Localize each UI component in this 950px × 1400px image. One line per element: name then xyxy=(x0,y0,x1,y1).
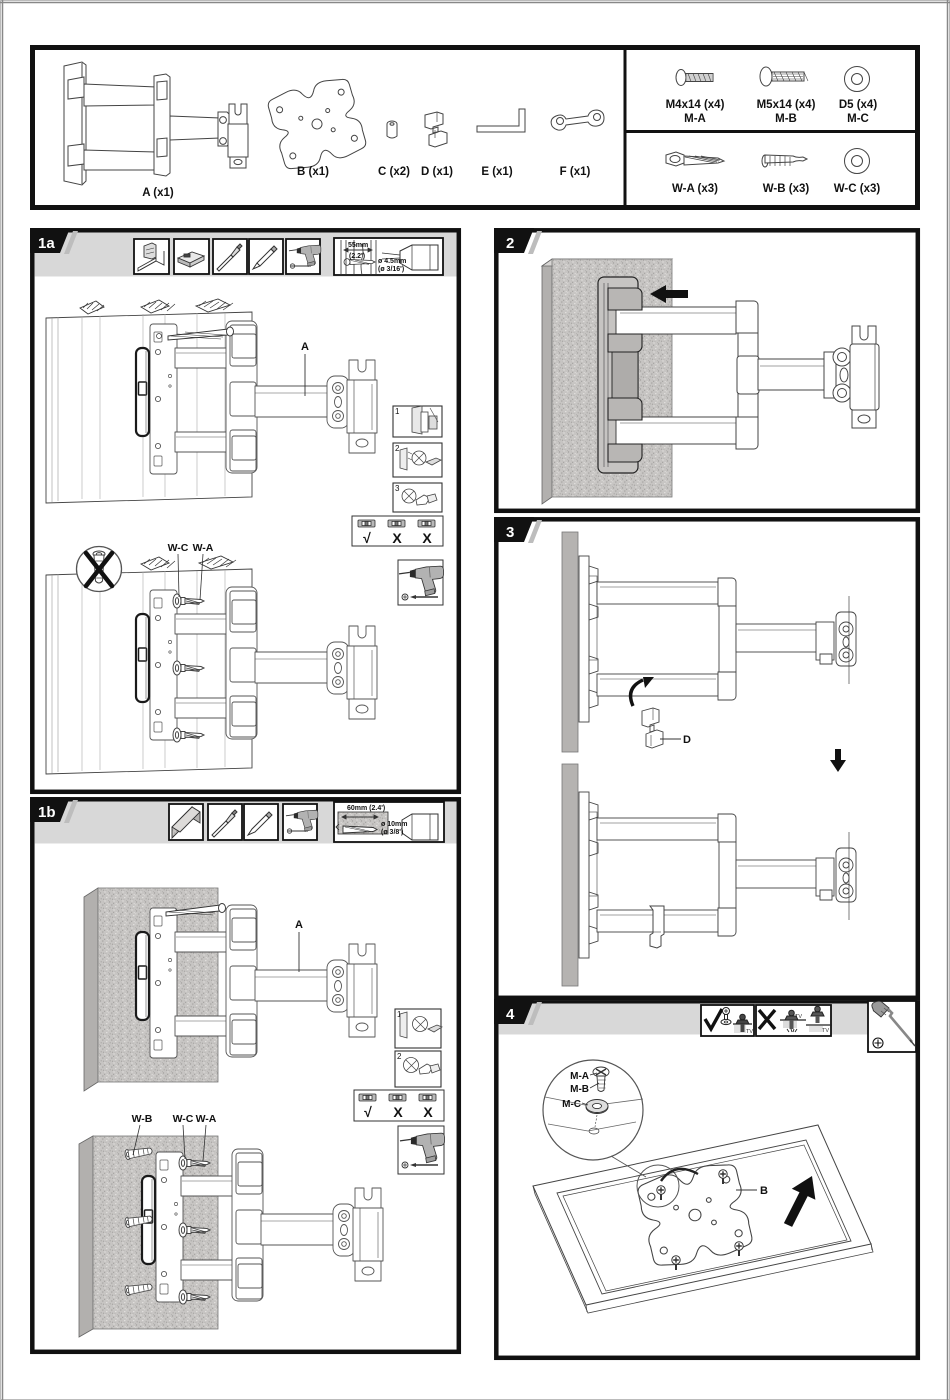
svg-text:ø 4.5mm: ø 4.5mm xyxy=(378,258,406,265)
svg-text:D: D xyxy=(683,734,691,746)
svg-text:2: 2 xyxy=(506,235,514,252)
svg-text:C (x2): C (x2) xyxy=(378,166,410,178)
svg-text:(2.2'): (2.2') xyxy=(349,253,365,260)
svg-text:X: X xyxy=(393,1104,403,1120)
svg-text:M-A: M-A xyxy=(570,1071,589,1082)
svg-text:1: 1 xyxy=(395,407,400,416)
svg-text:√: √ xyxy=(363,530,371,546)
svg-text:B (x1): B (x1) xyxy=(297,166,329,178)
svg-text:ø 10mm: ø 10mm xyxy=(381,821,407,828)
svg-text:W-A: W-A xyxy=(196,1113,217,1125)
svg-text:W-B: W-B xyxy=(132,1113,153,1125)
svg-text:M-C: M-C xyxy=(562,1099,581,1110)
svg-text:X: X xyxy=(392,530,402,546)
svg-text:F (x1): F (x1) xyxy=(560,166,591,178)
svg-text:3: 3 xyxy=(506,524,514,541)
svg-text:D5 (x4): D5 (x4) xyxy=(839,99,878,111)
svg-text:A (x1): A (x1) xyxy=(142,187,174,199)
svg-text:TV: TV xyxy=(822,1028,829,1034)
svg-text:W-A: W-A xyxy=(193,542,214,554)
svg-text:W-C: W-C xyxy=(168,542,189,554)
svg-text:W-B (x3): W-B (x3) xyxy=(763,183,810,195)
svg-text:55mm: 55mm xyxy=(348,242,368,249)
svg-text:(ø 3/8'): (ø 3/8') xyxy=(381,829,403,836)
svg-text:B: B xyxy=(760,1185,768,1197)
svg-text:W-C (x3): W-C (x3) xyxy=(834,183,881,195)
svg-text:4: 4 xyxy=(506,1006,515,1023)
svg-text:2: 2 xyxy=(395,444,400,453)
svg-text:W-C: W-C xyxy=(173,1113,194,1125)
svg-text:√: √ xyxy=(364,1104,372,1120)
svg-text:D (x1): D (x1) xyxy=(421,166,453,178)
svg-text:X: X xyxy=(422,530,432,546)
svg-text:TV: TV xyxy=(746,1029,753,1035)
svg-text:2: 2 xyxy=(397,1052,402,1061)
svg-text:M-B: M-B xyxy=(775,113,797,125)
svg-text:X: X xyxy=(423,1104,433,1120)
svg-text:TV: TV xyxy=(795,1014,802,1020)
svg-text:E (x1): E (x1) xyxy=(481,166,512,178)
svg-text:A: A xyxy=(301,341,309,353)
svg-text:3: 3 xyxy=(395,484,400,493)
svg-text:A: A xyxy=(295,919,303,931)
svg-text:(ø 3/16'): (ø 3/16') xyxy=(378,266,404,273)
svg-text:1b: 1b xyxy=(38,804,56,821)
svg-text:W-A (x3): W-A (x3) xyxy=(672,183,718,195)
svg-text:M5x14 (x4): M5x14 (x4) xyxy=(757,99,816,111)
svg-text:M-A: M-A xyxy=(684,113,706,125)
svg-text:60mm (2.4'): 60mm (2.4') xyxy=(347,805,385,812)
svg-text:M-B: M-B xyxy=(570,1084,589,1095)
svg-text:M4x14 (x4): M4x14 (x4) xyxy=(666,99,725,111)
svg-text:1a: 1a xyxy=(38,235,55,252)
svg-text:M-C: M-C xyxy=(847,113,869,125)
